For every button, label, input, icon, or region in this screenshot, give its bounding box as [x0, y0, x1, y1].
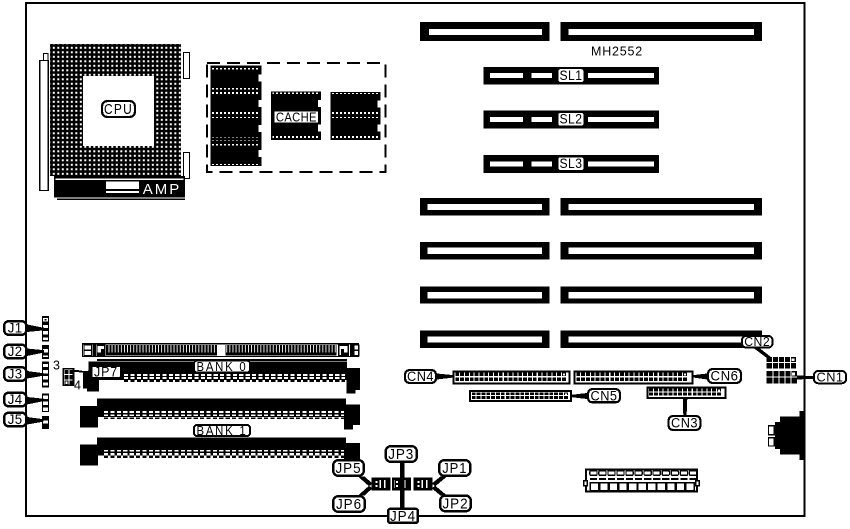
svg-text:CPU: CPU: [104, 102, 133, 118]
svg-text:CN6: CN6: [711, 369, 739, 384]
svg-text:JP3: JP3: [388, 447, 414, 463]
svg-text:4: 4: [74, 379, 81, 393]
svg-text:JP4: JP4: [390, 509, 416, 525]
svg-text:JP7: JP7: [94, 364, 118, 380]
svg-text:CN4: CN4: [407, 369, 434, 384]
svg-text:SL1: SL1: [560, 68, 583, 83]
svg-text:CN1: CN1: [817, 370, 844, 385]
svg-text:SL2: SL2: [560, 112, 583, 127]
svg-text:J4: J4: [8, 392, 23, 407]
svg-text:BANK 1: BANK 1: [197, 423, 248, 438]
svg-text:MH2552: MH2552: [591, 45, 643, 59]
svg-text:CN5: CN5: [591, 388, 618, 403]
svg-text:CN3: CN3: [671, 416, 698, 431]
svg-text:JP1: JP1: [442, 461, 467, 477]
svg-text:J1: J1: [8, 321, 23, 336]
svg-text:SL3: SL3: [560, 156, 583, 171]
svg-text:JP2: JP2: [443, 497, 469, 513]
svg-text:J5: J5: [8, 412, 23, 427]
svg-text:AMP: AMP: [143, 181, 182, 198]
svg-text:BANK 0: BANK 0: [197, 359, 248, 374]
svg-text:CN2: CN2: [744, 335, 770, 349]
svg-text:J3: J3: [8, 367, 23, 382]
svg-text:3: 3: [53, 359, 60, 373]
svg-text:JP6: JP6: [336, 497, 362, 513]
svg-text:CACHE: CACHE: [276, 110, 317, 125]
svg-text:JP5: JP5: [336, 461, 362, 477]
svg-text:J2: J2: [8, 344, 23, 359]
